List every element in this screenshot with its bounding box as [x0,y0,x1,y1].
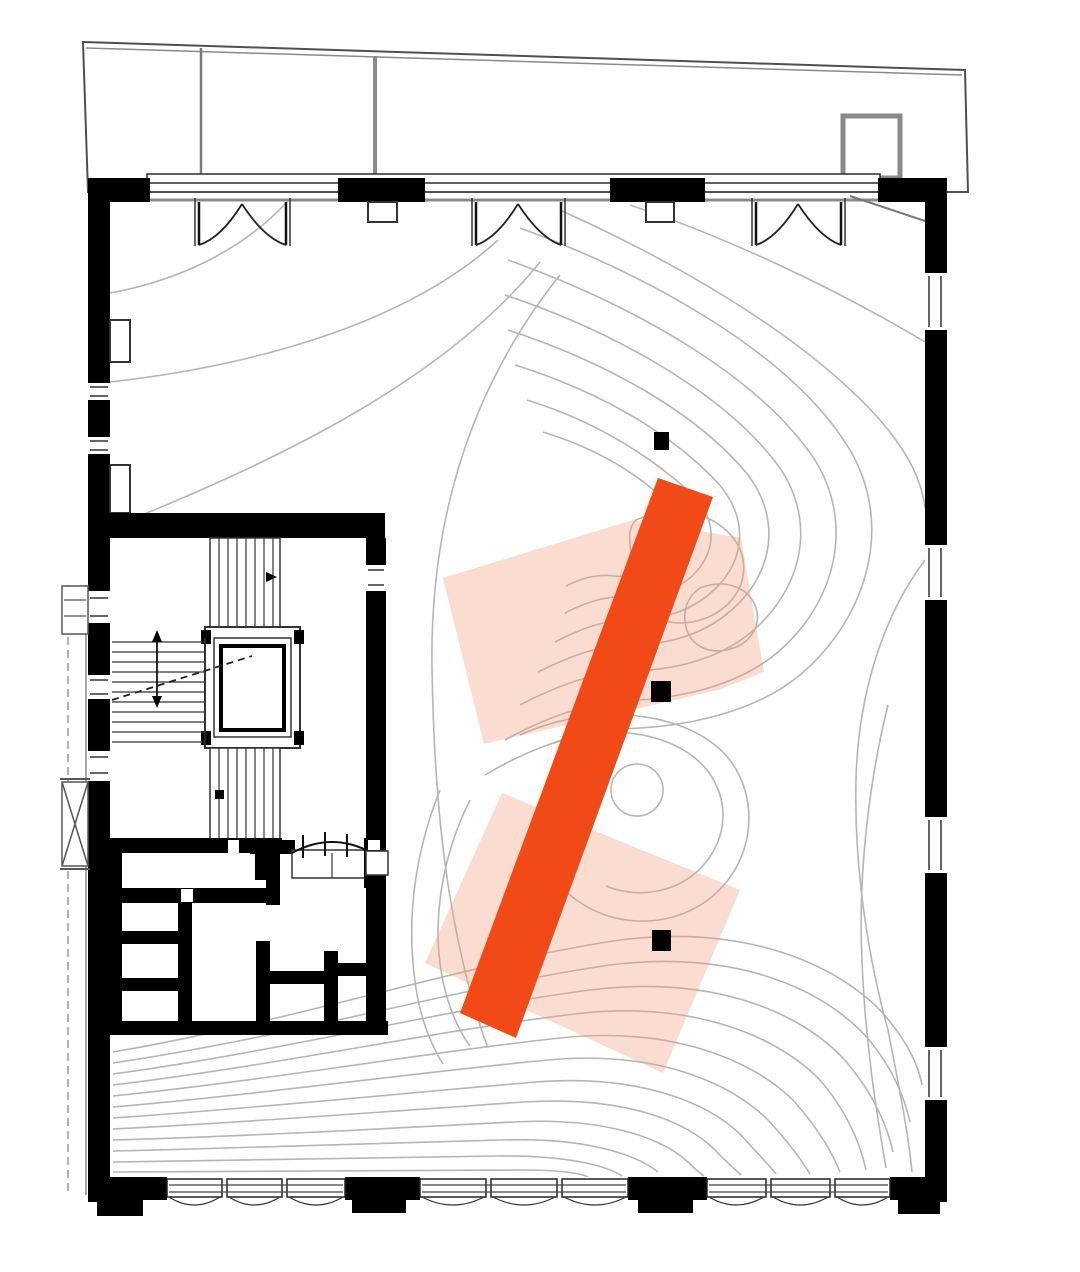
contour-east-2 [861,705,888,1168]
bottom-wall-stub-3 [638,1200,693,1213]
door2-swing-right [518,204,561,245]
elevator-tab-3 [201,731,211,745]
top-wall-pier-2 [338,178,425,202]
bottom-pane-2a [420,1179,486,1197]
cluster-vert-1 [266,853,280,905]
cluster-hwall-4 [256,971,334,984]
door3-swing-left [756,204,798,245]
contour-small-loop [611,764,663,816]
vestibule-right-notch [368,840,380,850]
column-marker-2 [651,681,671,702]
left-wall-gap-5 [88,751,110,781]
cluster-vert-2 [178,903,192,1023]
bottom-wall-stub-2 [352,1200,406,1213]
column-marker-3 [652,930,671,951]
cluster-corner-notch [366,851,388,875]
bottom-wall-stub-4 [898,1200,940,1214]
bottom-pane-1a [167,1179,222,1197]
top-wall-stub-2 [646,202,674,222]
cluster-bottom-wall [110,1021,388,1035]
stair-direction-arrow-up [152,630,162,642]
contour-hill-outer-1 [630,205,925,342]
cluster-hwall-1-door [181,889,193,902]
cluster-hwall-3 [110,978,178,991]
left-wall-gap-4 [88,675,110,699]
contour-field-12 [113,1170,588,1177]
bottom-wall-stub-1 [97,1200,143,1216]
site-boundary-inner-line [86,48,962,75]
stair-lower-mark [215,790,224,799]
bottom-pane-3a [707,1179,766,1197]
elevator-cab [221,646,284,730]
bottom-pane-2c [562,1179,628,1197]
core-top-wall [88,513,385,538]
cluster-hwall-2 [110,931,178,944]
site-kiosk-outline [843,116,900,178]
door3-swing-right [798,204,841,245]
exterior-strip-top-box [62,586,88,634]
contour-field-5 [113,1036,840,1172]
contour-upper-3 [110,262,540,528]
left-wall-gap-1 [88,383,110,400]
floor-plan [0,0,1080,1272]
door2-swing-left [476,204,518,245]
top-wall-pier-3 [610,178,705,202]
stair-upper-frame [210,538,280,628]
bottom-pane-3c [835,1179,890,1197]
site-boundary-outline [83,42,968,192]
left-wall-gap-2 [88,437,110,454]
bottom-pane-1c [287,1179,345,1197]
cluster-vert-4 [324,951,338,1023]
cluster-right-wall [366,886,386,1023]
cluster-top-wall [110,838,282,853]
contour-east-1 [856,560,925,1172]
left-wall-niche-2 [110,465,130,513]
cluster-top-wall-gap [228,840,239,853]
bottom-pane-3b [771,1179,830,1197]
contour-field-11 [113,1156,622,1176]
bottom-pane-1b [227,1179,282,1197]
top-glazing-band [147,174,880,183]
left-wall-niche-1 [110,320,130,362]
door1-swing-left [199,204,242,245]
elevator-tab-4 [294,731,304,745]
bottom-pane-2b [491,1179,557,1197]
contour-field-10 [113,1140,658,1172]
elevator-tab-2 [294,630,304,644]
top-wall-stub-1 [368,202,397,222]
contour-upper-2 [110,240,498,382]
floor-plan-svg [0,0,1080,1272]
core-right-wall-gap [366,565,386,591]
left-wall-gap-3 [88,591,110,623]
column-marker-1 [654,432,669,450]
